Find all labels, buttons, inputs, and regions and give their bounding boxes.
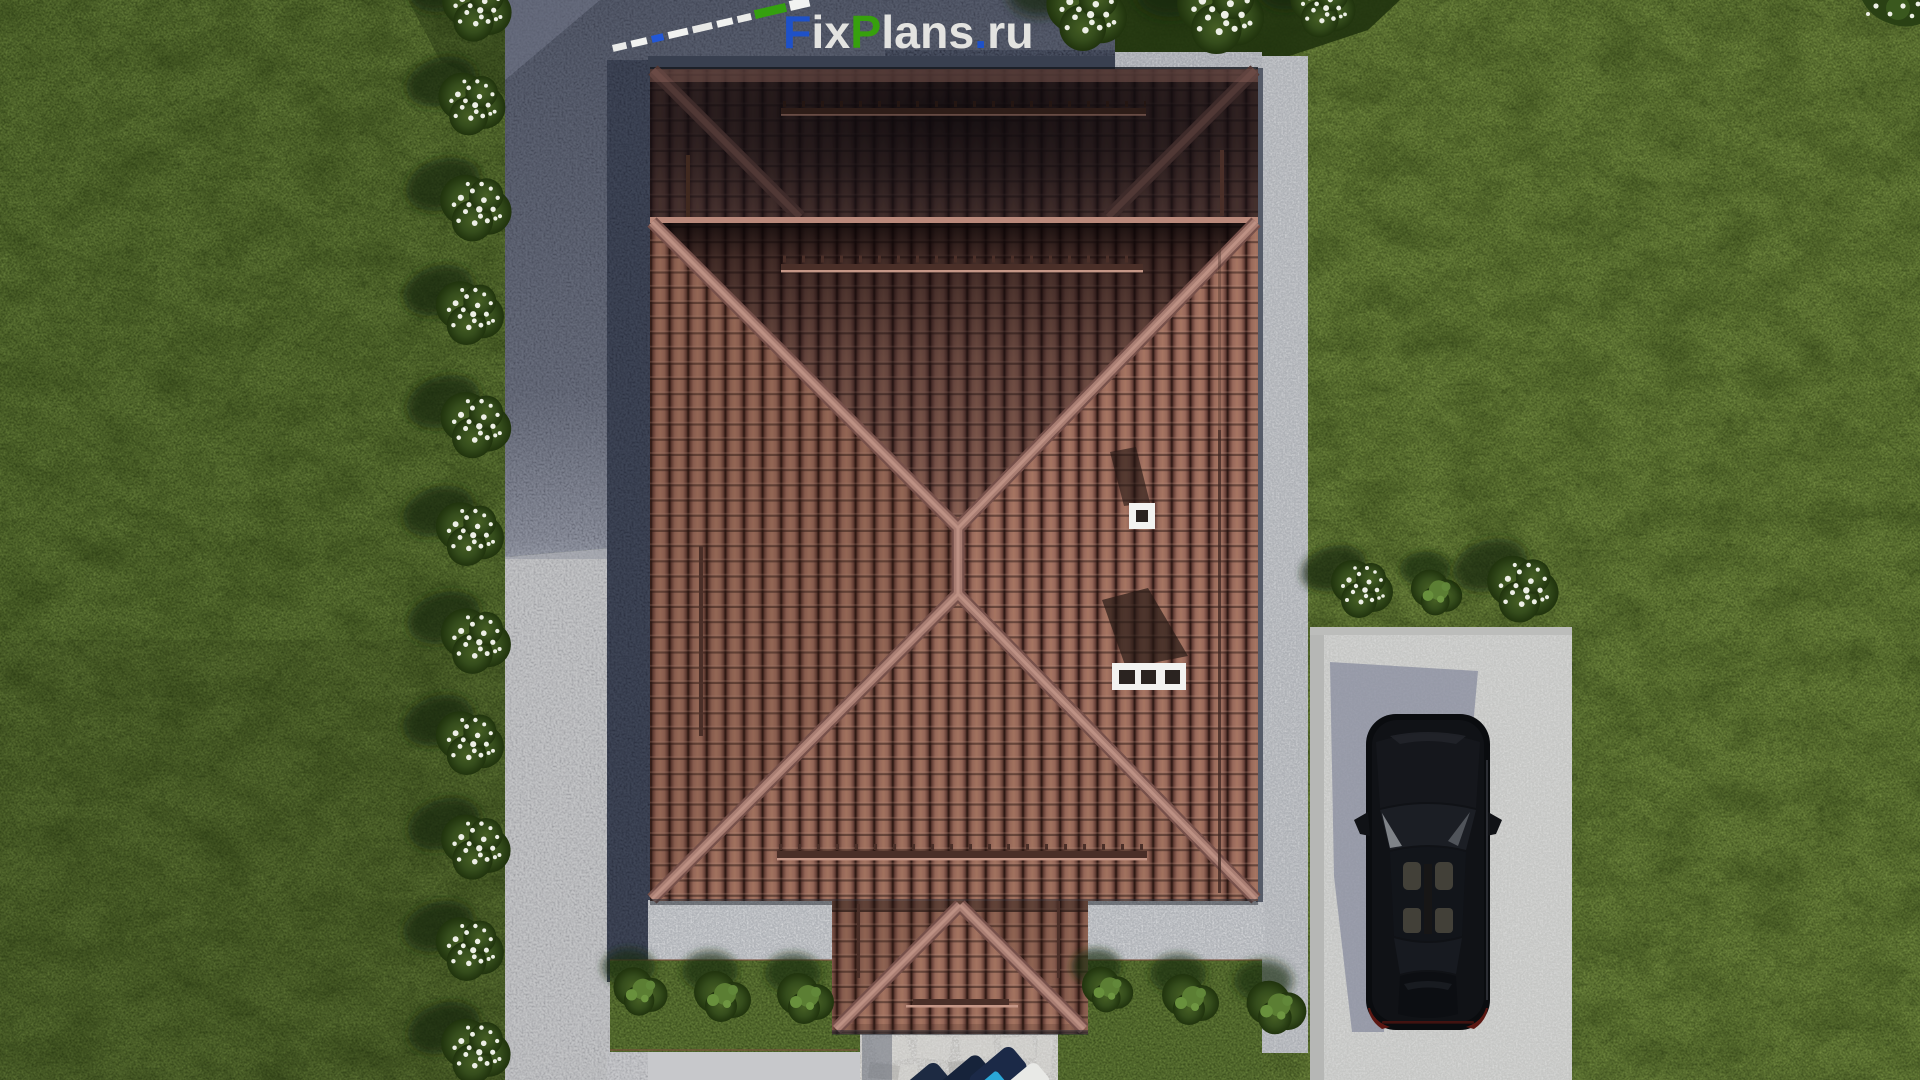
svg-text:FixPlans.ru: FixPlans.ru bbox=[783, 6, 1034, 58]
